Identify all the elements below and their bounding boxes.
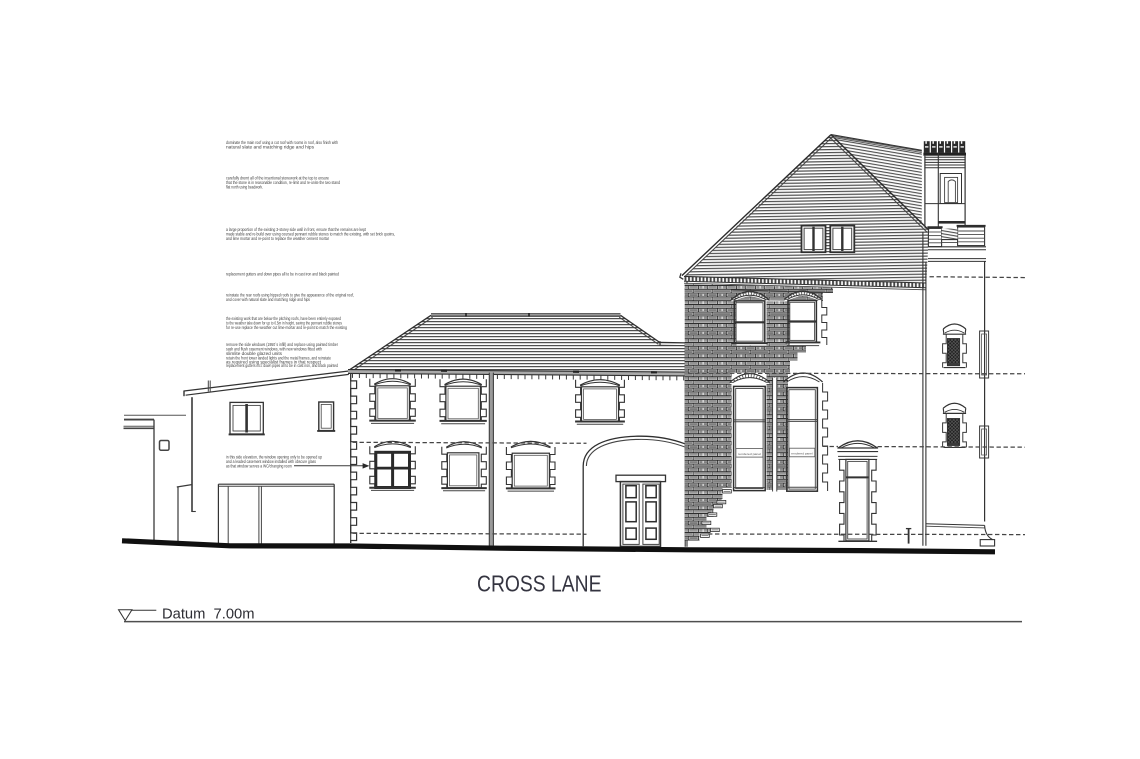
svg-text:rendered panel: rendered panel bbox=[738, 452, 761, 456]
svg-text:CROSS LANE: CROSS LANE bbox=[477, 571, 602, 597]
svg-text:natural slate and matching rid: natural slate and matching ridge and hip… bbox=[226, 145, 315, 150]
svg-text:and cover with natural slate a: and cover with natural slate and matchin… bbox=[226, 297, 311, 302]
svg-text:Datum 7.00m: Datum 7.00m bbox=[162, 605, 255, 622]
svg-text:replacement gutters incl. down: replacement gutters incl. down pipes all… bbox=[226, 363, 338, 368]
svg-text:flat north using beadwork.: flat north using beadwork. bbox=[226, 184, 263, 189]
svg-text:for re-use replace the weath: for re-use replace the weather cut lime-… bbox=[226, 325, 347, 330]
svg-text:replacement gutters and down p: replacement gutters and down pipes all t… bbox=[226, 271, 339, 276]
svg-text:rendered panel: rendered panel bbox=[791, 452, 813, 456]
svg-text:and lime mortar and re-point: and lime mortar and re-point to replace … bbox=[226, 236, 329, 241]
svg-text:as that window serves a WC/cha: as that window serves a WC/changing room bbox=[226, 464, 292, 469]
